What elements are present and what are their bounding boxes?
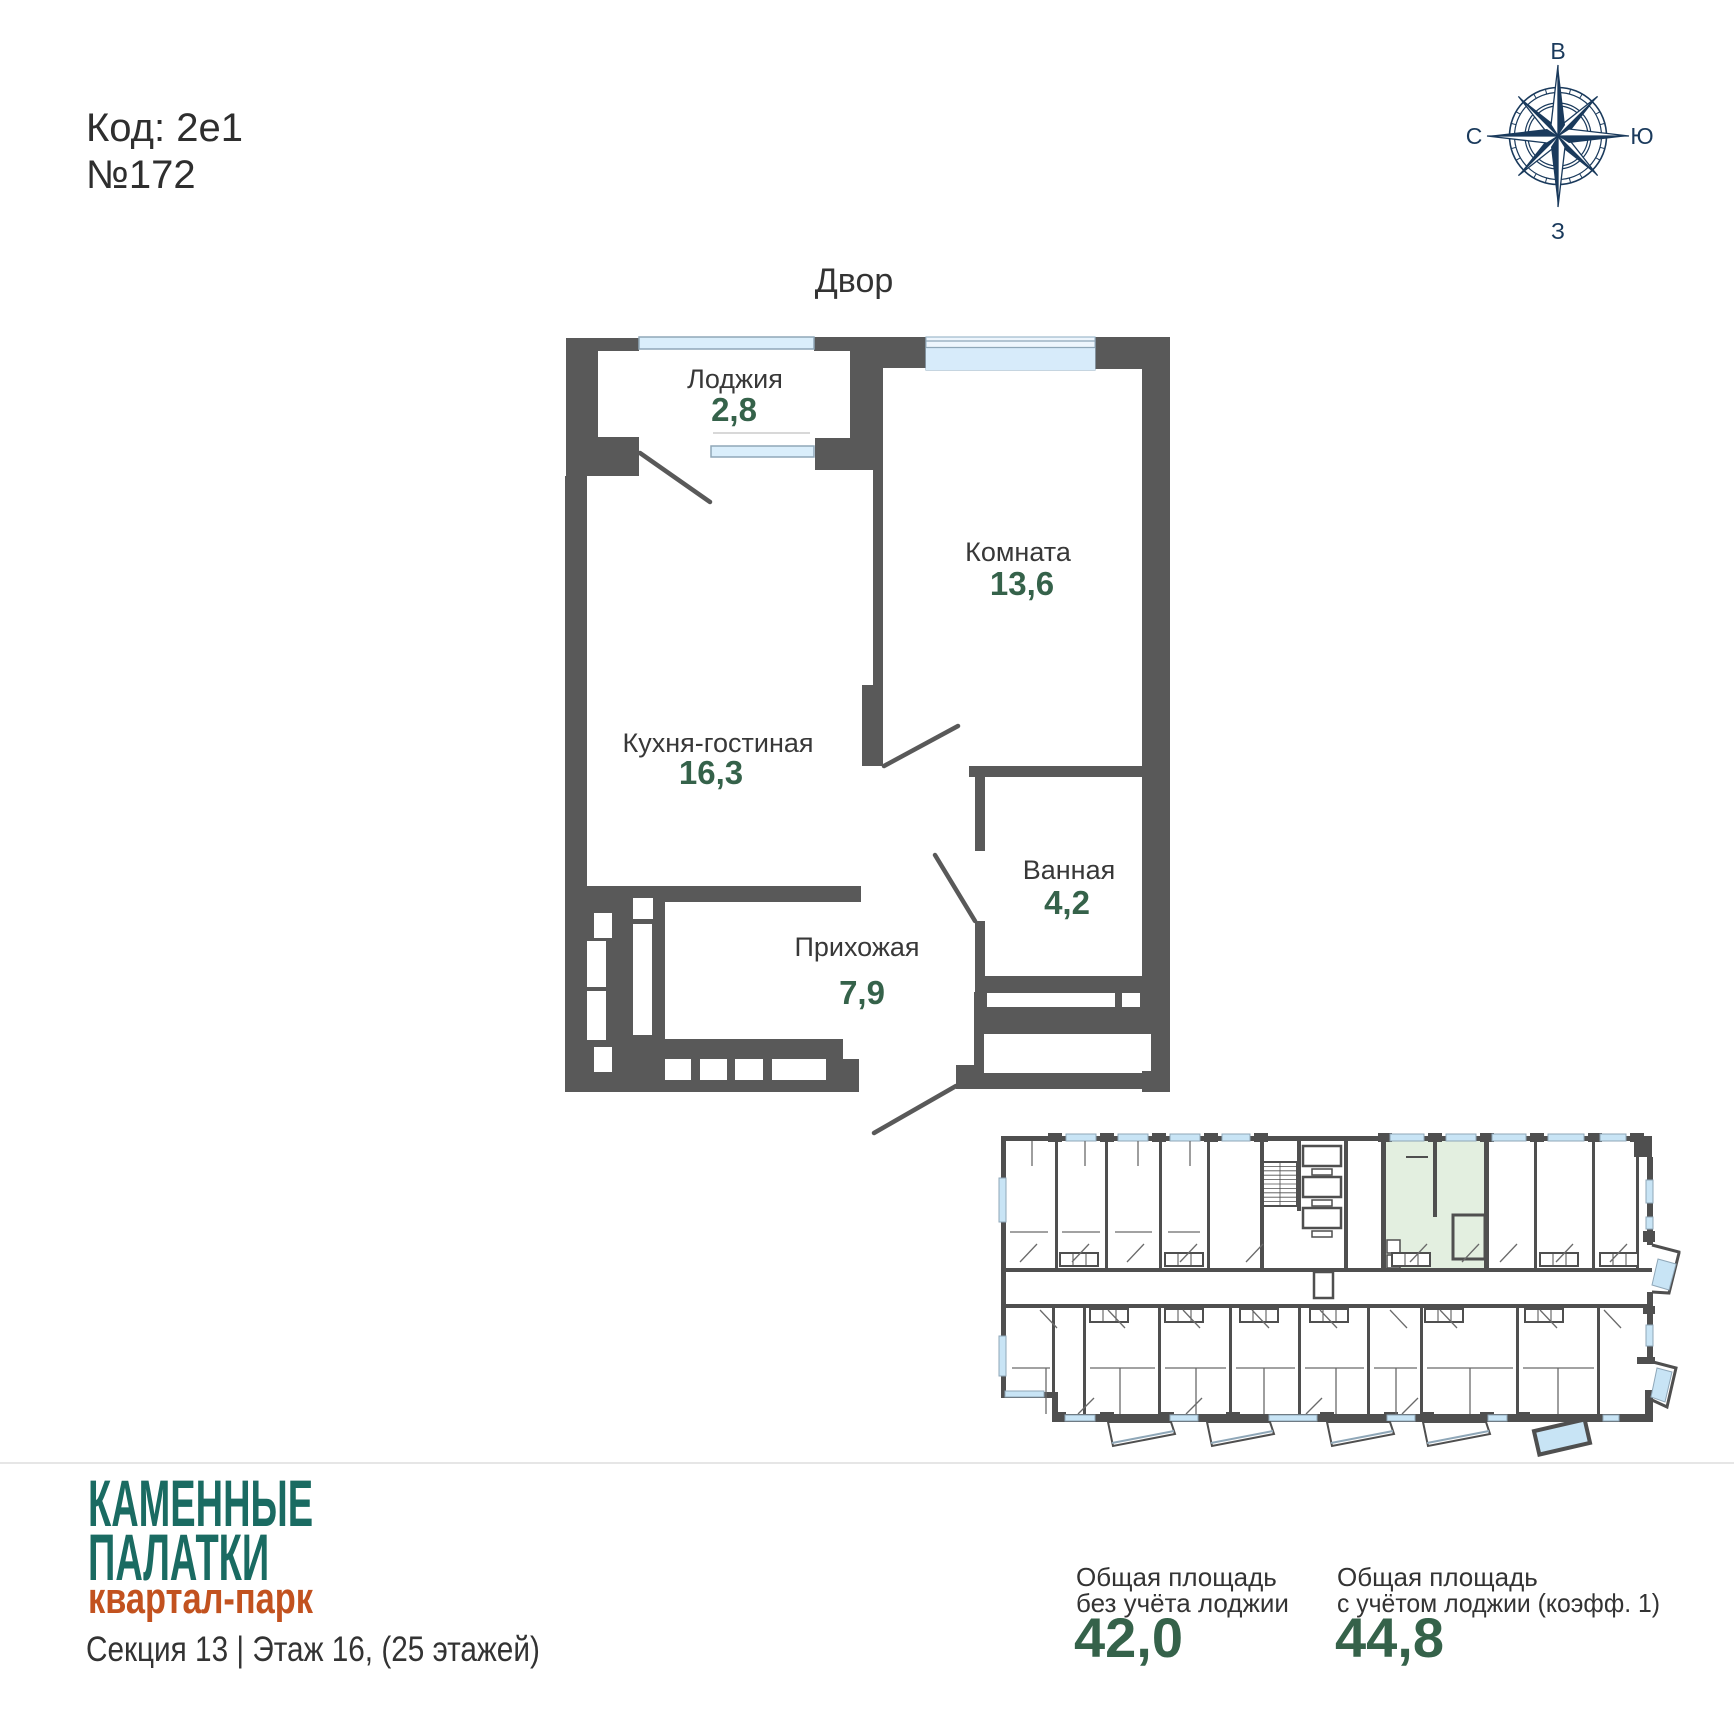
svg-text:Ю: Ю	[1630, 123, 1653, 149]
svg-text:Ванная: Ванная	[1023, 855, 1115, 885]
svg-text:С: С	[1466, 123, 1483, 149]
svg-text:4,2: 4,2	[1044, 884, 1090, 921]
svg-text:Лоджия: Лоджия	[687, 364, 783, 394]
svg-text:№172: №172	[86, 153, 196, 197]
svg-text:Прихожая: Прихожая	[794, 932, 919, 962]
svg-text:2,8: 2,8	[711, 391, 757, 428]
svg-text:Секция 13 | Этаж 16, (25 этаже: Секция 13 | Этаж 16, (25 этажей)	[86, 1630, 540, 1669]
svg-text:В: В	[1550, 38, 1565, 64]
svg-text:Комната: Комната	[965, 537, 1072, 567]
svg-text:Код: 2е1: Код: 2е1	[86, 106, 243, 150]
svg-text:16,3: 16,3	[679, 754, 743, 791]
svg-text:З: З	[1551, 218, 1565, 244]
svg-text:Двор: Двор	[815, 262, 894, 300]
svg-text:13,6: 13,6	[990, 565, 1054, 602]
svg-text:7,9: 7,9	[839, 974, 885, 1011]
svg-text:42,0: 42,0	[1074, 1606, 1183, 1669]
svg-text:44,8: 44,8	[1335, 1606, 1444, 1669]
svg-text:квартал-парк: квартал-парк	[88, 1574, 313, 1623]
